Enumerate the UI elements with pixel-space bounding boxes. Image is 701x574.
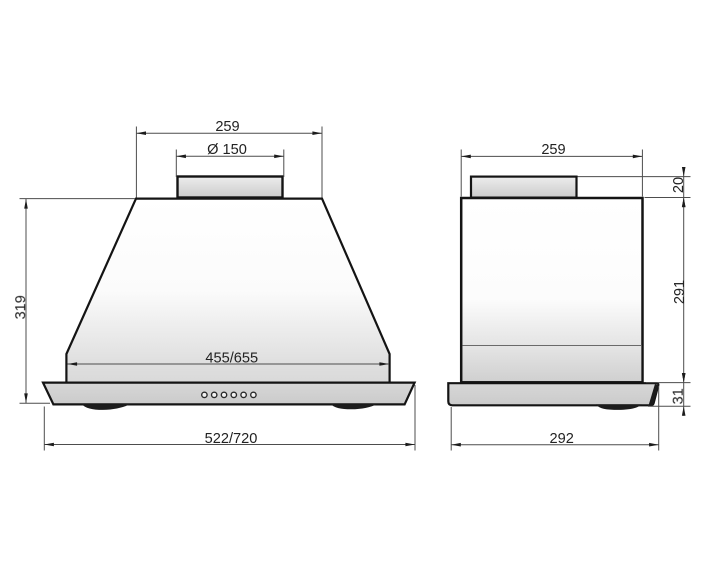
svg-text:Ø 150: Ø 150 <box>207 142 247 158</box>
svg-text:259: 259 <box>541 142 565 158</box>
svg-text:291: 291 <box>672 280 688 304</box>
svg-text:319: 319 <box>13 295 29 319</box>
svg-text:455/655: 455/655 <box>205 351 258 367</box>
svg-text:31: 31 <box>671 388 687 404</box>
svg-text:522/720: 522/720 <box>205 431 258 447</box>
svg-text:259: 259 <box>215 119 239 135</box>
svg-text:292: 292 <box>550 431 574 447</box>
svg-text:20: 20 <box>671 177 687 193</box>
